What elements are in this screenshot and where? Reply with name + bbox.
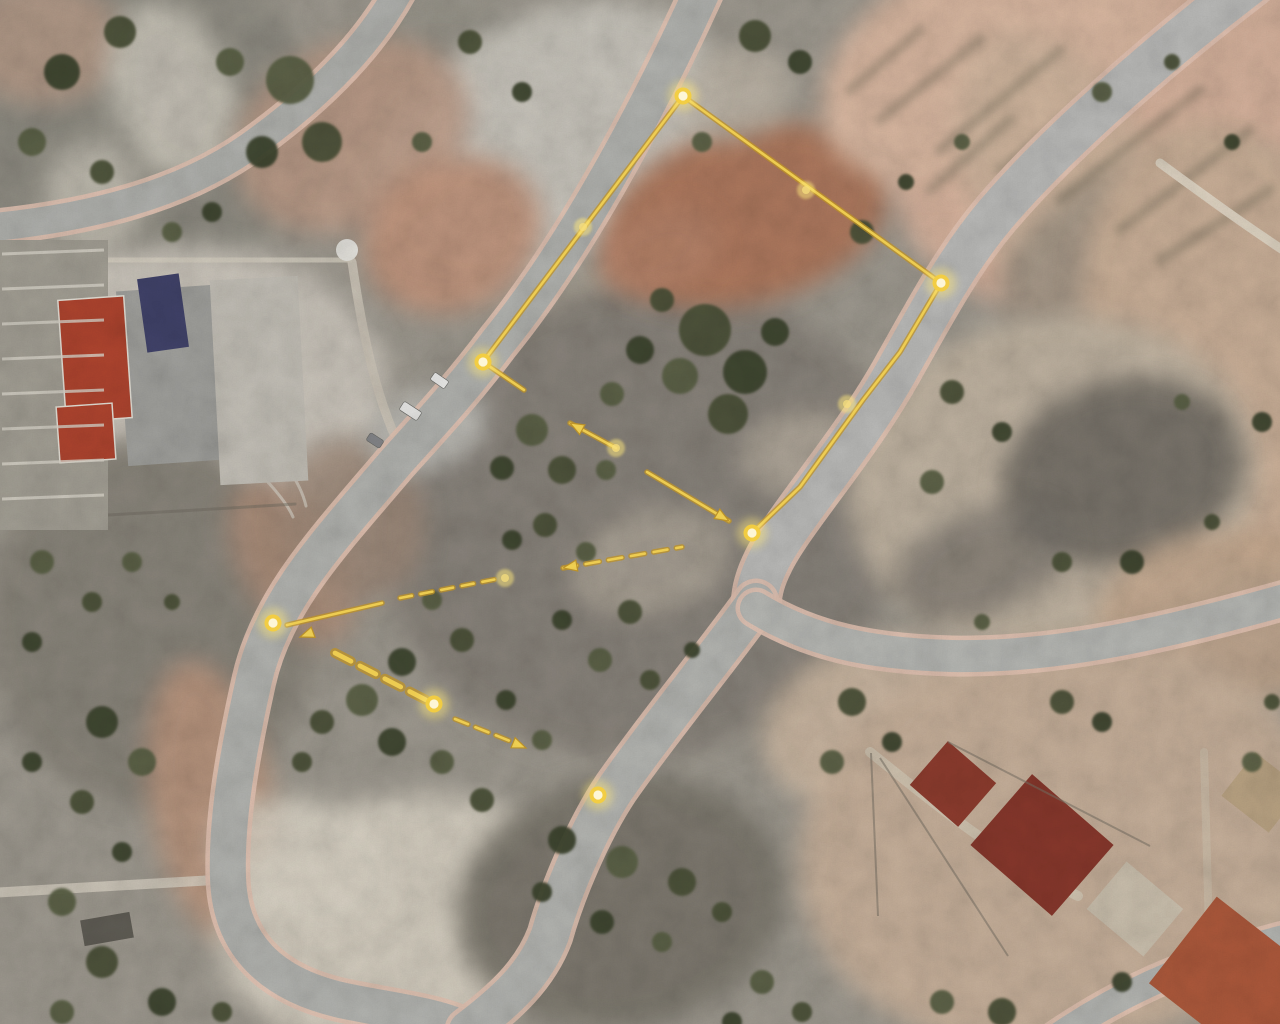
midpoint-core	[501, 574, 509, 582]
vertex-core	[936, 278, 945, 287]
vertex-core	[429, 699, 438, 708]
vertex-core	[478, 357, 487, 366]
vertex-core	[747, 528, 756, 537]
measure-vertex[interactable]	[583, 780, 613, 810]
measure-midpoint-dot[interactable]	[838, 395, 856, 413]
measure-vertex[interactable]	[737, 518, 767, 548]
midpoint-core	[579, 223, 587, 231]
measure-midpoint-dot[interactable]	[496, 569, 514, 587]
measure-midpoint-dot[interactable]	[797, 181, 815, 199]
midpoint-core	[843, 400, 851, 408]
midpoint-core	[612, 444, 620, 452]
measure-vertex[interactable]	[468, 347, 498, 377]
measure-vertex[interactable]	[668, 81, 698, 111]
measure-midpoint-dot[interactable]	[607, 439, 625, 457]
vertex-core	[268, 618, 277, 627]
measure-vertex[interactable]	[419, 689, 449, 719]
vertex-core	[678, 91, 687, 100]
aerial-imagery	[0, 0, 1280, 1024]
measure-vertex[interactable]	[258, 608, 288, 638]
midpoint-core	[802, 186, 810, 194]
measure-midpoint-dot[interactable]	[574, 218, 592, 236]
vertex-core	[593, 790, 602, 799]
satellite-map-view[interactable]	[0, 0, 1280, 1024]
measure-vertex[interactable]	[926, 268, 956, 298]
